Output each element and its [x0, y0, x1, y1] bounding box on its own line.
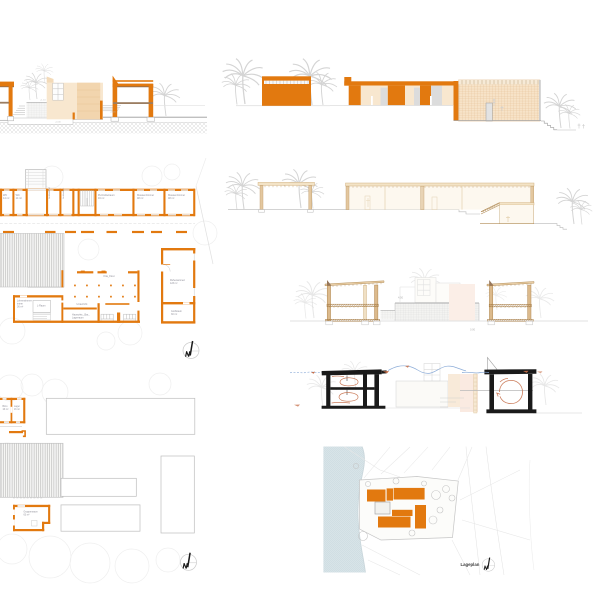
svg-text:Gruppenraum: Gruppenraum — [24, 511, 38, 514]
svg-text:14 m²: 14 m² — [16, 197, 23, 200]
svg-text:L-Raum: L-Raum — [37, 305, 46, 308]
svg-text:16 m²: 16 m² — [3, 408, 9, 411]
svg-text:30 m²: 30 m² — [171, 313, 177, 316]
svg-text:Lager: Lager — [14, 405, 20, 408]
svg-text:Kita_Flexi: Kita_Flexi — [104, 275, 115, 278]
svg-text:16 m²: 16 m² — [14, 408, 20, 411]
svg-text:Büro: Büro — [3, 405, 9, 408]
svg-text:Umkleide J.: Umkleide J. — [63, 187, 65, 199]
svg-text:63 m²: 63 m² — [24, 514, 30, 517]
svg-text:Umkleide M.: Umkleide M. — [49, 186, 51, 199]
svg-text:14 m²: 14 m² — [3, 197, 10, 200]
svg-text:+1.10: +1.10 — [40, 100, 46, 102]
svg-text:48 m²: 48 m² — [168, 197, 175, 200]
svg-text:48 m²: 48 m² — [137, 197, 144, 200]
svg-text:123 m²: 123 m² — [170, 282, 178, 285]
svg-text:Lagerraum: Lagerraum — [72, 317, 84, 320]
svg-text:Lageplan: Lageplan — [461, 562, 480, 567]
svg-text:+0.45: +0.45 — [110, 112, 116, 114]
svg-text:+0.00: +0.00 — [55, 122, 61, 124]
svg-text:4.50: 4.50 — [398, 296, 404, 300]
svg-text:36 m²: 36 m² — [17, 306, 23, 309]
svg-text:16 m²: 16 m² — [98, 197, 105, 200]
svg-text:Unterricht: Unterricht — [77, 303, 88, 306]
svg-text:0.00: 0.00 — [470, 328, 476, 332]
